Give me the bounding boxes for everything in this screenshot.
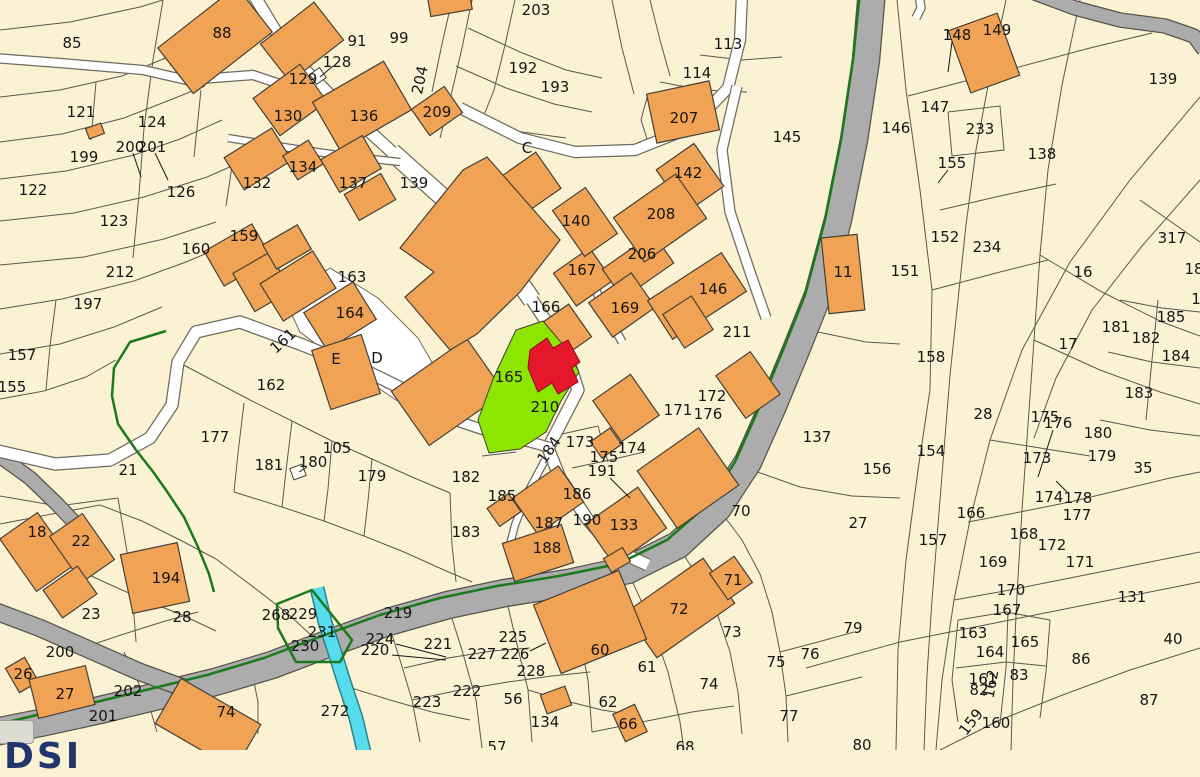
logo-text: DSI (4, 736, 82, 777)
parcel-label: 200 (46, 643, 75, 661)
parcel-label: 86 (1071, 650, 1090, 668)
parcel-label: 169 (979, 553, 1008, 571)
parcel-label: 73 (722, 623, 741, 641)
parcel-label: 220 (361, 641, 390, 659)
parcel-label: 88 (212, 24, 231, 42)
parcel-label: E (331, 350, 340, 368)
parcel-label: 182 (452, 468, 481, 486)
parcel-label: D (371, 349, 383, 367)
parcel-label: 206 (628, 245, 657, 263)
parcel-label: 179 (358, 467, 387, 485)
parcel-label: 219 (384, 604, 413, 622)
parcel-label: 79 (843, 619, 862, 637)
parcel-label: 140 (562, 212, 591, 230)
parcel-label: 159 (230, 227, 259, 245)
parcel-label: 74 (216, 703, 235, 721)
parcel-label: 99 (389, 29, 408, 47)
parcel-label: 21 (118, 461, 137, 479)
parcel-label: 180 (1084, 424, 1113, 442)
parcel-label: 226 (501, 645, 530, 663)
parcel-label: 210 (531, 398, 560, 416)
parcel-label: 157 (919, 531, 948, 549)
parcel-label: 225 (499, 628, 528, 646)
parcel-label: 177 (201, 428, 230, 446)
parcel-label: 136 (350, 107, 379, 125)
parcel-label: 28 (973, 405, 992, 423)
parcel-label: 142 (674, 164, 703, 182)
parcel-label: 194 (152, 569, 181, 587)
parcel-label: 190 (573, 511, 602, 529)
parcel-label: 113 (714, 35, 743, 53)
parcel-label: 77 (779, 707, 798, 725)
parcel-label: 60 (590, 641, 609, 659)
parcel-label: 57 (487, 738, 506, 750)
parcel-label: 173 (1023, 449, 1052, 467)
parcel-label: 75 (766, 653, 785, 671)
parcel-label: 160 (182, 240, 211, 258)
parcel-label: 163 (959, 624, 988, 642)
parcel-label: 209 (423, 103, 452, 121)
parcel-label: 167 (993, 601, 1022, 619)
parcel-label: 1 (1191, 290, 1200, 308)
parcel-label: 183 (1125, 384, 1154, 402)
parcel-label: 18 (27, 523, 46, 541)
parcel-label: 155 (938, 154, 967, 172)
parcel-label: 61 (637, 658, 656, 676)
parcel-label: 185 (1157, 308, 1186, 326)
parcel-label: 172 (698, 387, 727, 405)
parcel-label: 23 (81, 605, 100, 623)
parcel-label: 122 (19, 181, 48, 199)
parcel-label: 183 (452, 523, 481, 541)
parcel-label: 166 (532, 298, 561, 316)
parcel-label: 160 (982, 714, 1011, 732)
parcel-label: 134 (289, 158, 318, 176)
parcel-label: 268 (262, 606, 291, 624)
parcel-label: 145 (773, 128, 802, 146)
parcel-label: 114 (683, 64, 712, 82)
parcel-label: 181 (1102, 318, 1131, 336)
parcel-label: 212 (106, 263, 135, 281)
parcel-label: 185 (488, 487, 517, 505)
parcel-label: 66 (618, 715, 637, 733)
parcel-label: 87 (1139, 691, 1158, 709)
parcel-label: 171 (1066, 553, 1095, 571)
parcel-label: 163 (338, 268, 367, 286)
parcel-label: 148 (943, 26, 972, 44)
parcel-label: 222 (453, 682, 482, 700)
parcel-label: 72 (669, 600, 688, 618)
parcel-label: 146 (699, 280, 728, 298)
parcel-label: 137 (339, 174, 368, 192)
parcel-label: 85 (62, 34, 81, 52)
parcel-label: 228 (517, 662, 546, 680)
parcel-label: 56 (503, 690, 522, 708)
parcel-label: 202 (114, 682, 143, 700)
parcel-label: 91 (347, 32, 366, 50)
cadastral-map-svg[interactable]: 8588999112812913013612112419920020112212… (0, 0, 1200, 750)
parcel-label: 83 (1009, 666, 1028, 684)
parcel-label: 131 (1118, 588, 1147, 606)
parcel-label: 152 (931, 228, 960, 246)
parcel-label: 317 (1158, 229, 1187, 247)
parcel-label: 234 (973, 238, 1002, 256)
parcel-label: 70 (731, 502, 750, 520)
parcel-label: 165 (495, 368, 524, 386)
parcel-label: 132 (243, 174, 272, 192)
parcel-label: 35 (1133, 459, 1152, 477)
parcel-label: 201 (89, 707, 118, 725)
parcel-label: 230 (291, 637, 320, 655)
parcel-label: 174 (618, 439, 647, 457)
parcel-label: 80 (852, 736, 871, 750)
parcel-label: 40 (1163, 630, 1182, 648)
parcel-label: 18 (1184, 260, 1200, 278)
parcel-label: 147 (921, 98, 950, 116)
parcel-label: 187 (535, 514, 564, 532)
parcel-label: 221 (424, 635, 453, 653)
parcel-label: 26 (13, 665, 32, 683)
parcel-label: 203 (522, 1, 551, 19)
parcel-label: 68 (675, 738, 694, 750)
parcel-label: 169 (611, 299, 640, 317)
parcel-label: 133 (610, 516, 639, 534)
parcel-label: 170 (997, 581, 1026, 599)
parcel-label: 121 (67, 103, 96, 121)
parcel-label: 181 (255, 456, 284, 474)
parcel-label: 130 (274, 107, 303, 125)
parcel-label: 191 (588, 462, 617, 480)
parcel-label: 171 (664, 401, 693, 419)
parcel-label: 151 (891, 262, 920, 280)
road (916, 0, 921, 18)
parcel-label: 157 (8, 346, 37, 364)
parcel-label: 11 (833, 263, 852, 281)
parcel-label: 28 (172, 608, 191, 626)
parcel-label: 223 (413, 693, 442, 711)
parcel-label: 186 (563, 485, 592, 503)
parcel-label: 71 (723, 571, 742, 589)
parcel-label: 139 (400, 174, 429, 192)
parcel-label: 149 (983, 21, 1012, 39)
parcel-label: 168 (1010, 525, 1039, 543)
parcel-label: 207 (670, 109, 699, 127)
parcel-label: 176 (694, 405, 723, 423)
parcel-label: 27 (55, 685, 74, 703)
parcel-label: 165 (1011, 633, 1040, 651)
parcel-label: 166 (957, 504, 986, 522)
parcel-label: C (522, 139, 532, 157)
parcel-label: 192 (509, 59, 538, 77)
parcel-label: 138 (1028, 145, 1057, 163)
parcel-label: 227 (468, 645, 497, 663)
parcel-label: 193 (541, 78, 570, 96)
map-viewport[interactable]: 8588999112812913013612112419920020112212… (0, 0, 1200, 750)
parcel-label: 174 (1035, 488, 1064, 506)
parcel-label: 155 (0, 378, 26, 396)
parcel-label: 179 (1088, 447, 1117, 465)
parcel-label: 184 (1162, 347, 1191, 365)
parcel-label: 134 (531, 713, 560, 731)
parcel-label: 201 (138, 138, 167, 156)
parcel-label: 167 (568, 261, 597, 279)
parcel-label: 178 (1064, 489, 1093, 507)
parcel-label: 62 (598, 693, 617, 711)
parcel-label: 139 (1149, 70, 1178, 88)
parcel-label: 233 (966, 120, 995, 138)
parcel-label: 229 (289, 605, 318, 623)
parcel-label: 176 (1044, 414, 1073, 432)
parcel-label: 22 (71, 532, 90, 550)
parcel-label: 164 (976, 643, 1005, 661)
parcel-label: 129 (289, 70, 318, 88)
parcel-label: 16 (1073, 263, 1092, 281)
parcel-label: 17 (1058, 335, 1077, 353)
parcel-label: 272 (321, 702, 350, 720)
parcel-label: 162 (257, 376, 286, 394)
parcel-label: 177 (1063, 506, 1092, 524)
parcel-label: 156 (863, 460, 892, 478)
parcel-label: 154 (917, 442, 946, 460)
parcel-label: 164 (336, 304, 365, 322)
parcel-label: 188 (533, 539, 562, 557)
parcel-label: 146 (882, 119, 911, 137)
parcel-label: 27 (848, 514, 867, 532)
parcel-label: 208 (647, 205, 676, 223)
parcel-label: 76 (800, 645, 819, 663)
parcel-label: 197 (74, 295, 103, 313)
parcel-label: 123 (100, 212, 129, 230)
parcel-label: 105 (323, 439, 352, 457)
parcel-label: 137 (803, 428, 832, 446)
parcel-label: 126 (167, 183, 196, 201)
parcel-label: 182 (1132, 329, 1161, 347)
parcel-label: 158 (917, 348, 946, 366)
parcel-label: 211 (723, 323, 752, 341)
parcel-label: 199 (70, 148, 99, 166)
parcel-label: 82 (969, 681, 988, 699)
parcel-label: 128 (323, 53, 352, 71)
parcel-label: 172 (1038, 536, 1067, 554)
parcel-label: 74 (699, 675, 718, 693)
parcel-label: 124 (138, 113, 167, 131)
